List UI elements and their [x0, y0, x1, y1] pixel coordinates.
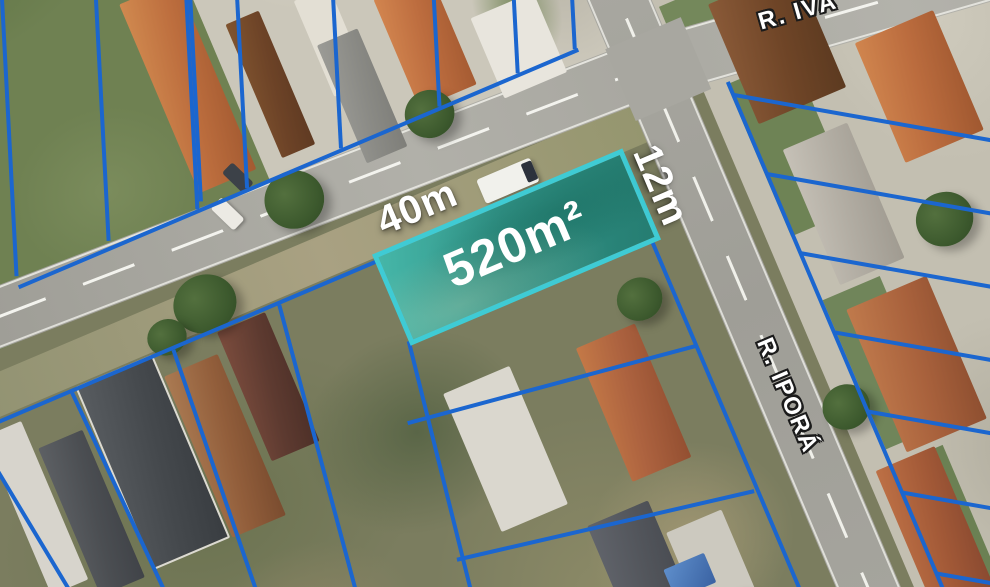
- aerial-photo: 520m² 40m 12m R. IVA R. IPORÁ: [0, 0, 990, 587]
